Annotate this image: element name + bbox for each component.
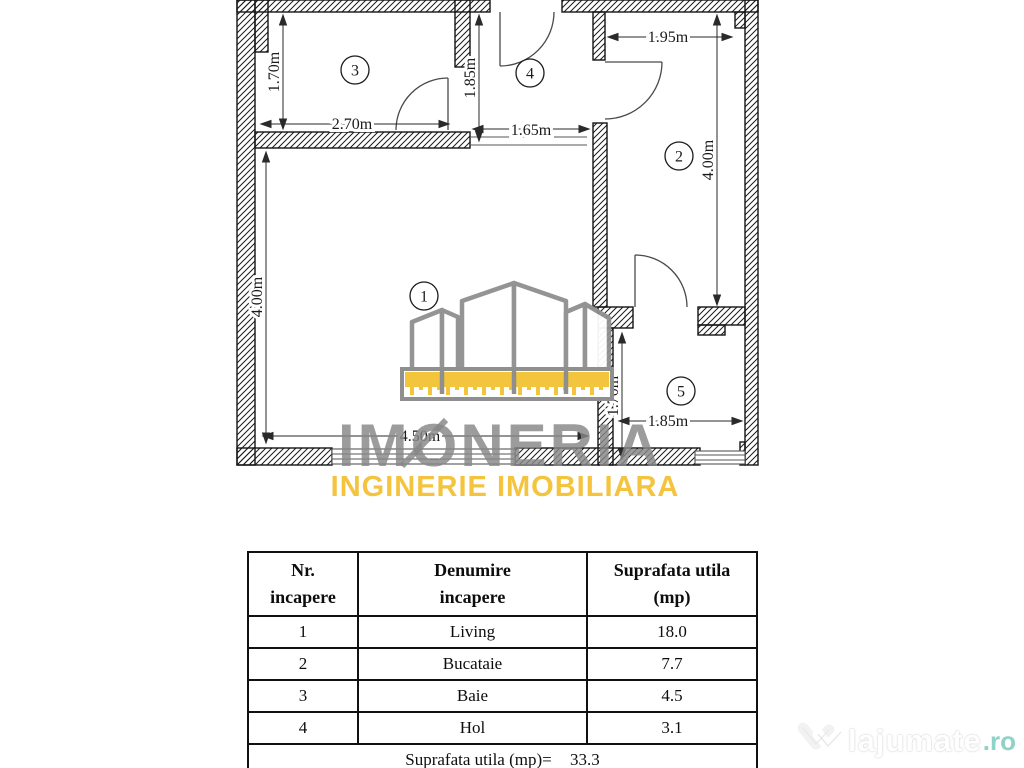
cell-area: 18.0 xyxy=(587,616,757,648)
cell-area: 3.1 xyxy=(587,712,757,744)
camera5-door xyxy=(635,255,687,307)
table-total-row: Suprafata utila (mp)= 33.3 xyxy=(248,744,757,768)
bucatarie-door xyxy=(605,62,662,119)
lajumate-logo-icon xyxy=(796,718,848,764)
site-name: lajumate xyxy=(848,723,982,759)
room-label-hol: 4 xyxy=(516,59,544,87)
room-label-living: 1 xyxy=(410,282,438,310)
room-label-camera5: 5 xyxy=(667,377,695,405)
svg-text:4: 4 xyxy=(526,66,534,83)
table-row: 4 Hol 3.1 xyxy=(248,712,757,744)
total-cell: Suprafata utila (mp)= 33.3 xyxy=(248,744,757,768)
room-label-baie: 3 xyxy=(341,56,369,84)
header-nr: Nr. incapere xyxy=(248,552,358,616)
dim-living-height: 4.00m xyxy=(249,276,266,317)
dim-hol-height: 1.85m xyxy=(462,57,479,98)
cell-area: 7.7 xyxy=(587,648,757,680)
table-header-row: Nr. incapere Denumire incapere Suprafata… xyxy=(248,552,757,616)
screenshot-page: 1.70m 2.70m 1.85m 1.65m 1.95m 4.00m 4.00… xyxy=(0,0,1024,768)
cell-name: Living xyxy=(358,616,587,648)
cell-nr: 1 xyxy=(248,616,358,648)
svg-text:3: 3 xyxy=(351,63,359,80)
brand-name: IMONERIA xyxy=(338,412,662,479)
total-value: 33.3 xyxy=(570,750,600,768)
doors xyxy=(396,12,687,307)
areas-table: Nr. incapere Denumire incapere Suprafata… xyxy=(247,551,758,768)
table-row: 2 Bucataie 7.7 xyxy=(248,648,757,680)
header-suprafata: Suprafata utila (mp) xyxy=(587,552,757,616)
cell-nr: 3 xyxy=(248,680,358,712)
floor-plan: 1.70m 2.70m 1.85m 1.65m 1.95m 4.00m 4.00… xyxy=(0,0,1024,515)
site-tld: .ro xyxy=(983,726,1016,757)
cell-name: Baie xyxy=(358,680,587,712)
brand-tagline: INGINERIE IMOBILIARA xyxy=(331,471,680,503)
ruler-icon xyxy=(402,369,612,399)
dim-hol-width: 1.65m xyxy=(511,122,552,139)
entrance-door xyxy=(500,12,554,66)
dim-bucatarie-width: 1.95m xyxy=(648,29,689,46)
svg-text:2: 2 xyxy=(675,149,683,166)
header-denumire: Denumire incapere xyxy=(358,552,587,616)
cell-name: Bucataie xyxy=(358,648,587,680)
cell-nr: 4 xyxy=(248,712,358,744)
dim-baie-width: 2.70m xyxy=(332,116,373,133)
dim-baie-height: 1.70m xyxy=(266,51,283,92)
room-label-bucatarie: 2 xyxy=(665,142,693,170)
dim-bucatarie-height: 4.00m xyxy=(700,139,717,180)
cell-nr: 2 xyxy=(248,648,358,680)
cell-area: 4.5 xyxy=(587,680,757,712)
table-row: 3 Baie 4.5 xyxy=(248,680,757,712)
buildings-icon xyxy=(412,283,609,372)
table-row: 1 Living 18.0 xyxy=(248,616,757,648)
lajumate-watermark: lajumate.ro xyxy=(796,718,1016,764)
cell-name: Hol xyxy=(358,712,587,744)
total-label: Suprafata utila (mp)= xyxy=(405,750,551,768)
svg-text:1: 1 xyxy=(420,289,428,306)
svg-text:5: 5 xyxy=(677,384,685,401)
